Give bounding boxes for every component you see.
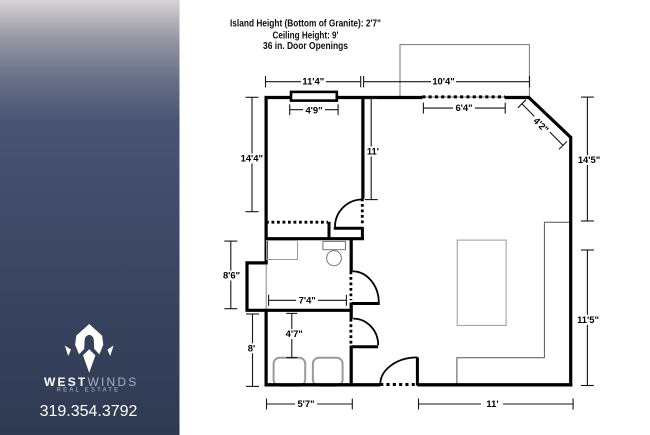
svg-text:5'7": 5'7" <box>297 398 314 409</box>
svg-text:REAL ESTATE: REAL ESTATE <box>57 387 121 393</box>
svg-text:Island Height (Bottom of Grani: Island Height (Bottom of Granite): 2'7" <box>230 19 381 30</box>
svg-text:7'4": 7'4" <box>299 294 316 305</box>
svg-text:11': 11' <box>367 146 379 157</box>
svg-text:14'4": 14'4" <box>241 153 263 164</box>
svg-text:6'4": 6'4" <box>455 102 472 113</box>
svg-text:10'4": 10'4" <box>432 76 454 87</box>
svg-text:319.354.3792: 319.354.3792 <box>40 403 138 420</box>
svg-text:14'5": 14'5" <box>578 154 600 165</box>
svg-text:8'6": 8'6" <box>223 270 240 281</box>
svg-text:11': 11' <box>486 398 498 409</box>
svg-text:11'5": 11'5" <box>577 314 599 325</box>
svg-text:4'9": 4'9" <box>305 105 322 116</box>
svg-text:36 in. Door Openings: 36 in. Door Openings <box>263 41 348 52</box>
svg-text:8': 8' <box>248 342 255 353</box>
svg-text:11'4": 11'4" <box>302 76 324 87</box>
svg-text:4'7": 4'7" <box>286 328 303 339</box>
